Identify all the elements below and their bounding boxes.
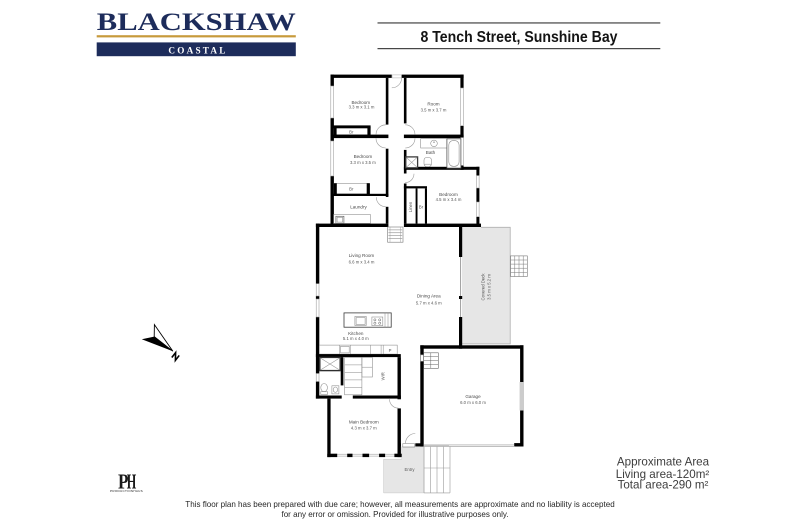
svg-text:COASTAL: COASTAL bbox=[168, 45, 227, 55]
svg-text:6.0 m x 6.0 m: 6.0 m x 6.0 m bbox=[460, 400, 486, 405]
svg-text:This floor plan has been prepa: This floor plan has been prepared with d… bbox=[185, 500, 614, 509]
svg-text:Living Room: Living Room bbox=[349, 253, 375, 258]
svg-text:Entry: Entry bbox=[405, 467, 416, 472]
svg-text:4.3 m x 3.7 m: 4.3 m x 3.7 m bbox=[351, 426, 377, 431]
svg-text:WIR: WIR bbox=[381, 372, 386, 380]
svg-text:Garage: Garage bbox=[465, 394, 481, 399]
svg-text:4.5 m x 3.4 m: 4.5 m x 3.4 m bbox=[436, 197, 462, 202]
svg-text:5.7 m x 4.6 m: 5.7 m x 4.6 m bbox=[416, 301, 442, 306]
svg-text:Covered Deck: Covered Deck bbox=[480, 273, 485, 301]
svg-text:P: P bbox=[389, 348, 392, 353]
svg-text:5.1 m x 4.0 m: 5.1 m x 4.0 m bbox=[343, 336, 369, 341]
svg-text:3.5 m x 3.7 m: 3.5 m x 3.7 m bbox=[421, 108, 447, 113]
svg-text:Linen: Linen bbox=[408, 201, 413, 212]
svg-text:Laundry: Laundry bbox=[350, 204, 367, 209]
svg-text:Room: Room bbox=[427, 102, 439, 107]
svg-text:8 Tench Street, Sunshine Bay: 8 Tench Street, Sunshine Bay bbox=[421, 29, 618, 46]
svg-text:Br: Br bbox=[349, 129, 354, 134]
svg-text:BLACKSHAW: BLACKSHAW bbox=[97, 7, 297, 36]
svg-text:Total area-290 m²: Total area-290 m² bbox=[618, 479, 709, 492]
svg-text:PRODUCTIONHAUS: PRODUCTIONHAUS bbox=[110, 489, 143, 493]
svg-text:Br: Br bbox=[349, 187, 354, 192]
svg-text:Bedroom: Bedroom bbox=[354, 154, 373, 159]
svg-text:3.5 m x 5.2 m: 3.5 m x 5.2 m bbox=[486, 274, 491, 300]
svg-text:Main Bedroom: Main Bedroom bbox=[349, 419, 379, 424]
svg-text:Br: Br bbox=[419, 205, 424, 210]
svg-text:for any error or omission. Pro: for any error or omission. Provided for … bbox=[281, 510, 508, 519]
svg-text:Dining Area: Dining Area bbox=[417, 293, 441, 298]
svg-text:6.6 m x 3.4 m: 6.6 m x 3.4 m bbox=[349, 259, 375, 264]
svg-text:3.3 m x 3.5 m: 3.3 m x 3.5 m bbox=[350, 160, 376, 165]
svg-text:Bath: Bath bbox=[426, 150, 436, 155]
svg-text:Approximate Area: Approximate Area bbox=[617, 456, 710, 469]
svg-text:3.3 m x 3.1 m: 3.3 m x 3.1 m bbox=[349, 105, 375, 110]
